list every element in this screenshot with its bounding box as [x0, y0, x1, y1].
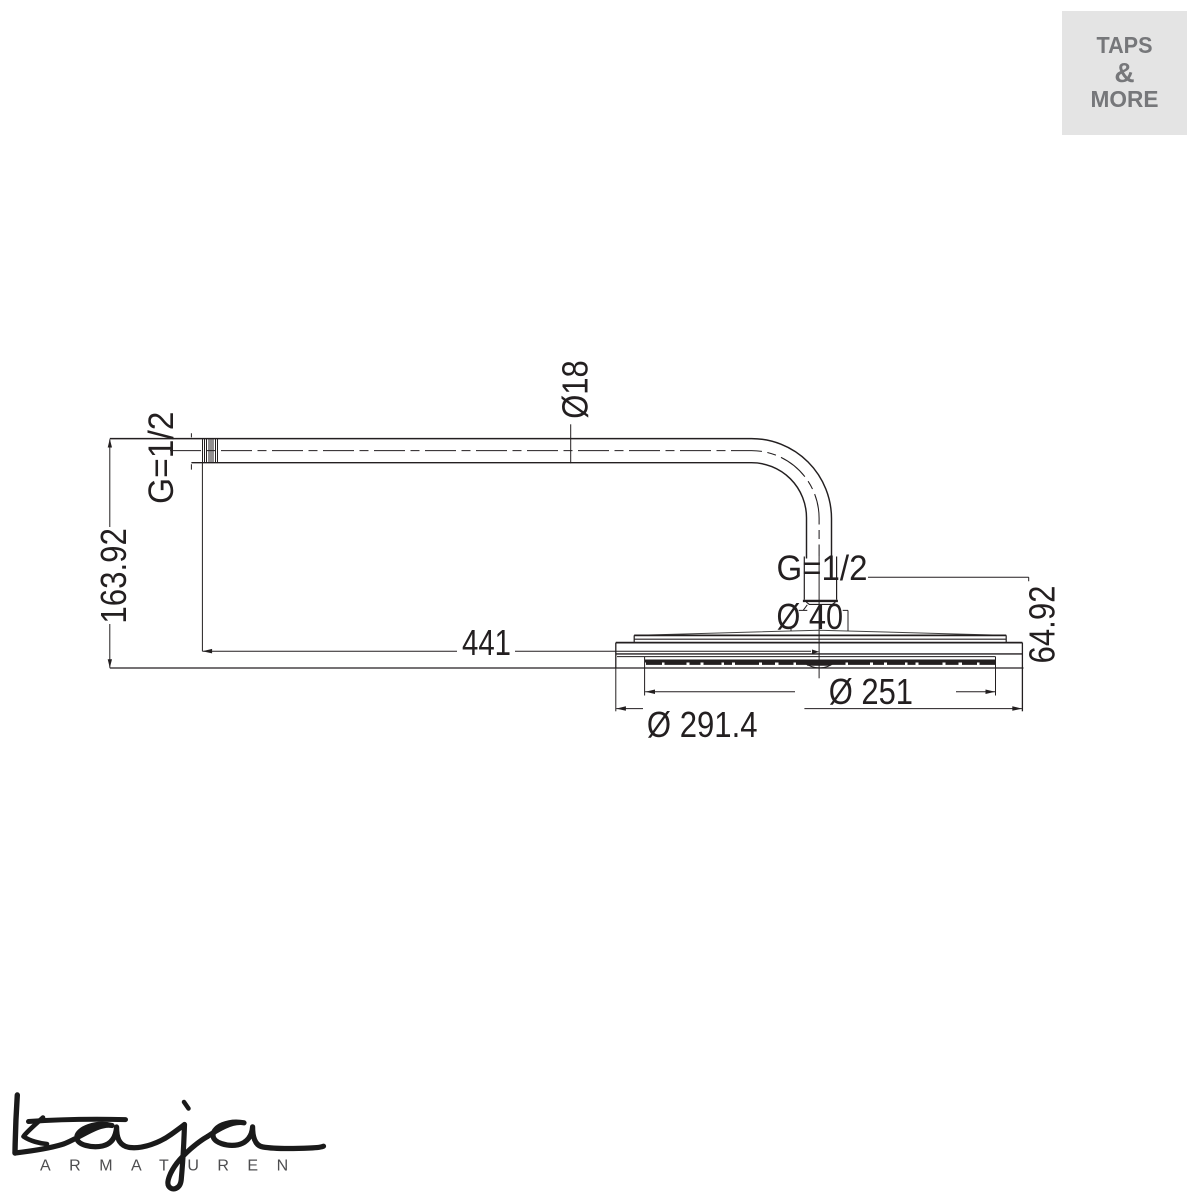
- svg-text:ARMATUREN: ARMATUREN: [40, 1158, 307, 1175]
- svg-text:MORE: MORE: [1091, 86, 1159, 112]
- svg-text:Ø18: Ø18: [555, 360, 596, 419]
- svg-text:G=1/2: G=1/2: [777, 549, 868, 588]
- svg-text:TAPS: TAPS: [1097, 32, 1153, 58]
- svg-text:Ø 291.4: Ø 291.4: [647, 704, 758, 745]
- svg-text:Ø 40: Ø 40: [777, 596, 844, 637]
- svg-text:441: 441: [462, 622, 511, 663]
- svg-text:&: &: [1114, 57, 1134, 88]
- svg-text:64.92: 64.92: [1022, 586, 1063, 664]
- svg-text:163.92: 163.92: [93, 528, 134, 624]
- svg-text:Ø 251: Ø 251: [829, 671, 913, 712]
- svg-text:G=1/2: G=1/2: [142, 412, 181, 505]
